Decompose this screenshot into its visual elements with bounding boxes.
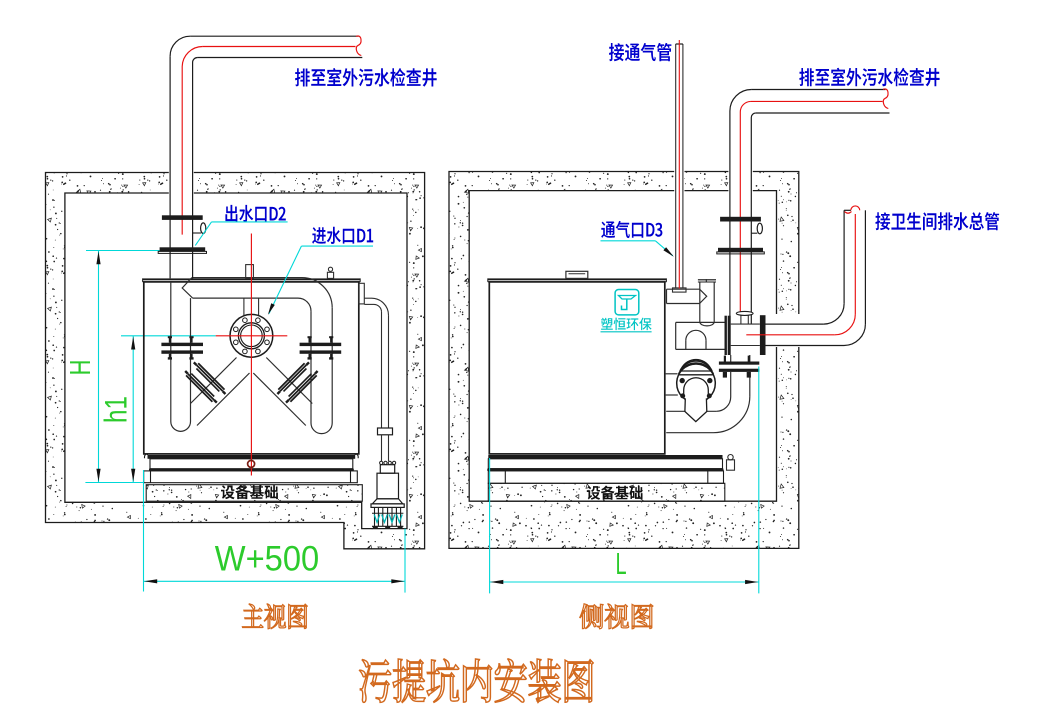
svg-text:L: L — [615, 548, 626, 581]
svg-text:W+500: W+500 — [215, 539, 319, 579]
svg-text:h1: h1 — [98, 396, 133, 423]
svg-text:H: H — [65, 360, 97, 376]
